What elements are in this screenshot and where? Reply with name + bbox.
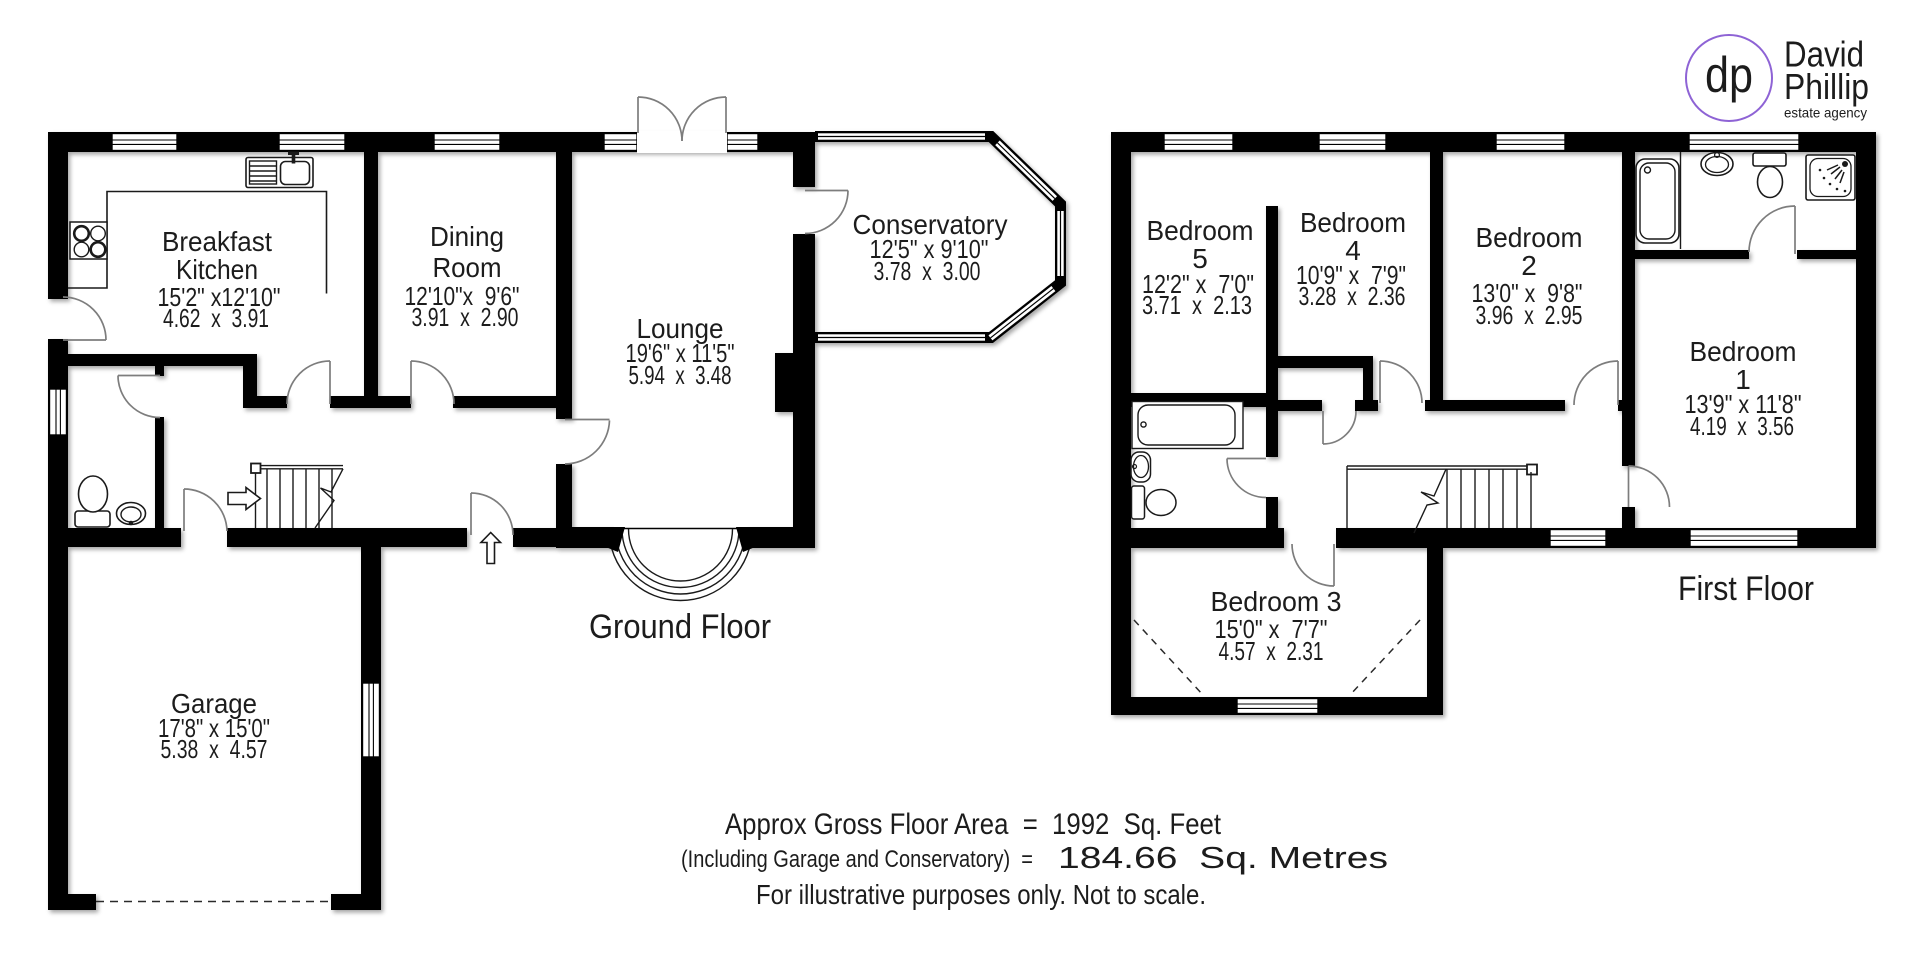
svg-text:dp: dp (1705, 47, 1753, 103)
svg-text:4.62 x 3.91: 4.62 x 3.91 (163, 303, 269, 333)
svg-text:Dining: Dining (430, 221, 504, 252)
svg-text:Bedroom: Bedroom (1476, 222, 1583, 253)
svg-text:3.28 x 2.36: 3.28 x 2.36 (1299, 281, 1406, 311)
svg-text:(Including Garage and Conserva: (Including Garage and Conservatory) = (681, 846, 1033, 873)
svg-text:Room: Room (433, 252, 502, 283)
svg-text:Phillip: Phillip (1784, 66, 1869, 107)
svg-text:Approx Gross Floor Area = 19: Approx Gross Floor Area = 1992 Sq. Feet (725, 808, 1222, 841)
svg-text:3.91 x 2.90: 3.91 x 2.90 (412, 302, 519, 332)
svg-text:Breakfast: Breakfast (162, 226, 272, 257)
svg-text:estate agency: estate agency (1784, 105, 1867, 121)
svg-text:Bedroom: Bedroom (1300, 207, 1406, 238)
svg-text:3.78 x 3.00: 3.78 x 3.00 (874, 256, 981, 286)
svg-text:Kitchen: Kitchen (176, 254, 258, 285)
svg-text:Bedroom: Bedroom (1147, 215, 1254, 246)
svg-text:4.19 x 3.56: 4.19 x 3.56 (1690, 411, 1794, 441)
svg-text:3.96 x 2.95: 3.96 x 2.95 (1476, 300, 1583, 330)
svg-text:Bedroom 3: Bedroom 3 (1211, 586, 1342, 617)
svg-text:First Floor: First Floor (1678, 570, 1814, 608)
svg-text:184.66 Sq. Metres: 184.66 Sq. Metres (1058, 840, 1388, 875)
svg-text:5.94 x 3.48: 5.94 x 3.48 (629, 360, 732, 390)
svg-text:Ground Floor: Ground Floor (589, 608, 771, 646)
svg-text:For illustrative purposes only: For illustrative purposes only. Not to s… (756, 879, 1206, 910)
svg-text:2: 2 (1521, 250, 1537, 281)
svg-text:3.71 x 2.13: 3.71 x 2.13 (1142, 290, 1252, 320)
svg-text:Bedroom: Bedroom (1690, 336, 1797, 367)
svg-text:5.38 x 4.57: 5.38 x 4.57 (161, 734, 268, 764)
svg-text:4.57 x 2.31: 4.57 x 2.31 (1219, 636, 1324, 666)
